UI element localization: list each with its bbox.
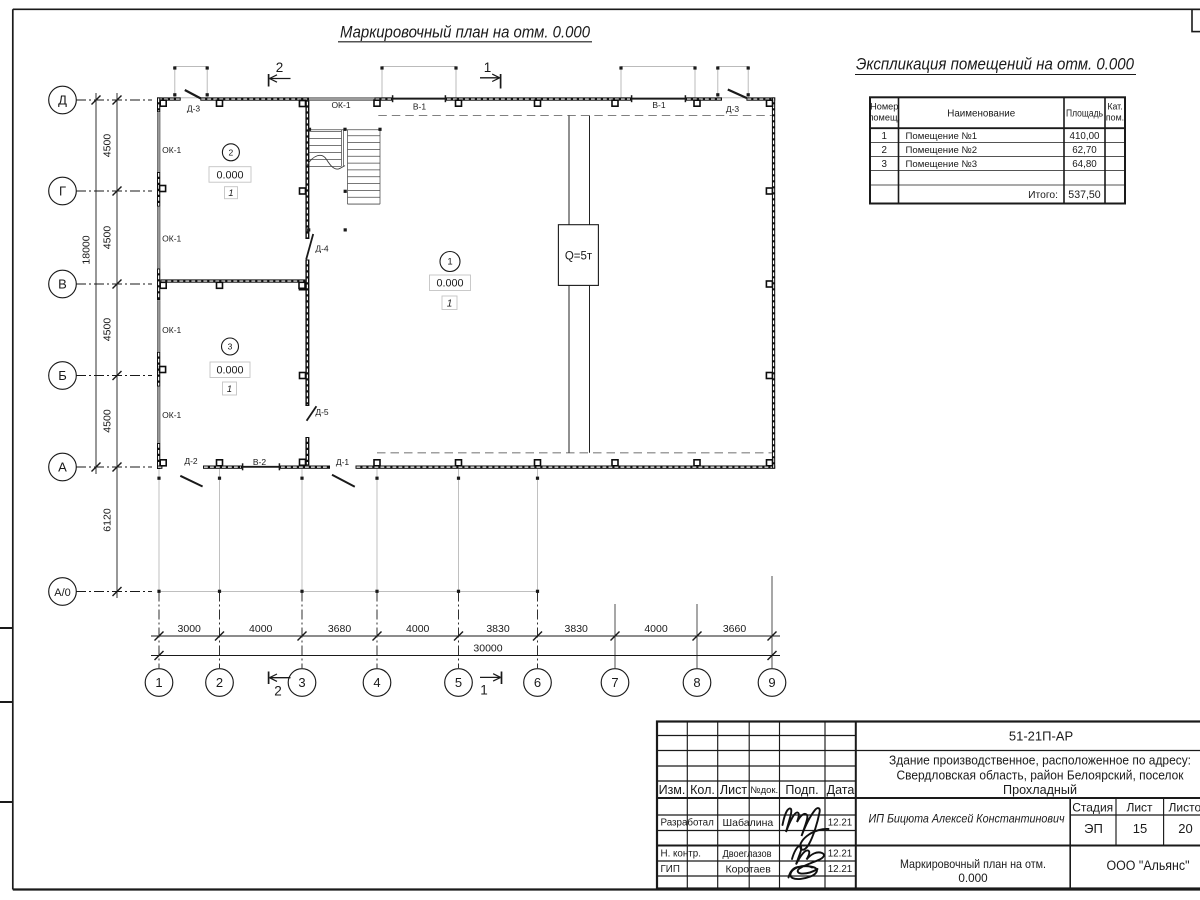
svg-text:64,80: 64,80 <box>1072 159 1097 170</box>
svg-text:Свердловская область, район Бе: Свердловская область, район Белоярский, … <box>897 768 1184 782</box>
svg-text:410,00: 410,00 <box>1070 131 1101 142</box>
svg-text:ОК-1: ОК-1 <box>162 325 181 335</box>
svg-text:Д-3: Д-3 <box>187 104 201 114</box>
svg-text:ОК-1: ОК-1 <box>162 145 181 155</box>
svg-text:Дата: Дата <box>827 783 855 797</box>
svg-text:Д-1: Д-1 <box>336 457 350 467</box>
svg-text:537,50: 537,50 <box>1068 189 1101 201</box>
svg-text:Итого:: Итого: <box>1028 190 1058 201</box>
svg-text:Помещение №1: Помещение №1 <box>906 131 978 142</box>
svg-text:Д: Д <box>58 92 67 107</box>
svg-text:3: 3 <box>298 675 305 690</box>
svg-text:12.21: 12.21 <box>828 864 853 875</box>
svg-text:Г: Г <box>59 183 66 198</box>
svg-text:ИП Бицюта Алексей Константинов: ИП Бицюта Алексей Константинович <box>869 812 1065 826</box>
svg-text:Лист: Лист <box>720 783 747 797</box>
svg-text:0.000: 0.000 <box>436 278 463 290</box>
svg-text:ООО "Альянс": ООО "Альянс" <box>1107 858 1190 873</box>
svg-text:2: 2 <box>229 148 234 158</box>
svg-text:4500: 4500 <box>102 226 114 250</box>
svg-text:Маркировочный план на отм. 0.0: Маркировочный план на отм. 0.000 <box>340 24 591 42</box>
svg-text:8: 8 <box>693 675 700 690</box>
svg-text:3830: 3830 <box>565 623 589 635</box>
svg-text:20: 20 <box>1178 821 1192 836</box>
svg-text:Кол.: Кол. <box>690 783 715 797</box>
svg-text:Б: Б <box>58 368 67 383</box>
svg-text:Коротаев: Коротаев <box>726 864 772 876</box>
svg-text:6120: 6120 <box>102 508 114 532</box>
svg-text:Экспликация помещений на отм.: Экспликация помещений на отм. 0.000 <box>856 56 1135 74</box>
svg-text:4: 4 <box>373 675 380 690</box>
svg-text:1: 1 <box>447 299 453 310</box>
svg-text:Помещение №2: Помещение №2 <box>906 145 978 156</box>
svg-text:ОК-1: ОК-1 <box>162 234 181 244</box>
svg-text:Двоеглазов: Двоеглазов <box>723 848 772 860</box>
svg-text:5: 5 <box>455 675 462 690</box>
svg-text:1: 1 <box>155 675 162 690</box>
svg-text:3000: 3000 <box>178 623 202 635</box>
svg-text:Н. контр.: Н. контр. <box>661 849 701 860</box>
svg-text:Площадь: Площадь <box>1066 109 1103 120</box>
svg-text:7: 7 <box>611 675 618 690</box>
svg-text:0.000: 0.000 <box>216 169 243 181</box>
svg-text:0.000: 0.000 <box>958 872 988 885</box>
svg-text:2: 2 <box>276 60 284 75</box>
svg-text:15: 15 <box>1133 821 1147 836</box>
svg-text:Изм.: Изм. <box>659 783 686 797</box>
svg-text:пом.: пом. <box>1106 113 1124 123</box>
svg-text:4500: 4500 <box>102 318 114 342</box>
svg-text:В: В <box>58 276 67 291</box>
svg-text:Наименование: Наименование <box>947 109 1015 120</box>
svg-text:1: 1 <box>228 188 233 198</box>
svg-text:помещ.: помещ. <box>868 113 900 123</box>
svg-text:9: 9 <box>768 675 775 690</box>
svg-text:1: 1 <box>447 257 452 268</box>
svg-text:А/0: А/0 <box>54 587 71 599</box>
svg-text:№док.: №док. <box>750 785 778 796</box>
svg-text:2: 2 <box>882 145 887 156</box>
svg-text:62,70: 62,70 <box>1072 145 1097 156</box>
svg-text:1: 1 <box>484 60 492 75</box>
svg-text:Q=5т: Q=5т <box>565 251 593 263</box>
svg-text:Номер: Номер <box>870 102 898 112</box>
svg-text:30000: 30000 <box>473 643 502 655</box>
svg-text:3: 3 <box>228 342 233 352</box>
svg-text:Кат.: Кат. <box>1107 102 1122 112</box>
svg-text:12.21: 12.21 <box>828 849 853 860</box>
svg-text:Д-5: Д-5 <box>315 407 329 417</box>
svg-text:3830: 3830 <box>486 623 510 635</box>
svg-text:Д-3: Д-3 <box>726 104 740 114</box>
svg-text:Прохладный: Прохладный <box>1003 783 1077 797</box>
svg-text:12.21: 12.21 <box>828 818 853 829</box>
svg-text:ОК-1: ОК-1 <box>162 410 181 420</box>
svg-text:Д-2: Д-2 <box>184 456 198 466</box>
svg-text:Маркировочный план на отм.: Маркировочный план на отм. <box>900 858 1046 871</box>
svg-text:В-2: В-2 <box>253 457 267 467</box>
svg-text:ОК-1: ОК-1 <box>331 100 350 110</box>
svg-text:3660: 3660 <box>723 623 747 635</box>
svg-text:Шабалина: Шабалина <box>723 817 774 829</box>
svg-text:Д-4: Д-4 <box>315 244 329 254</box>
svg-text:2: 2 <box>216 675 223 690</box>
svg-text:4000: 4000 <box>644 623 668 635</box>
svg-text:3: 3 <box>882 159 888 170</box>
svg-text:0.000: 0.000 <box>216 365 243 377</box>
svg-text:Подп.: Подп. <box>785 783 818 797</box>
svg-text:Листов: Листов <box>1169 801 1200 815</box>
svg-text:В-1: В-1 <box>413 102 427 112</box>
svg-text:2: 2 <box>274 684 282 699</box>
svg-text:Лист: Лист <box>1126 801 1153 815</box>
svg-text:1: 1 <box>882 131 887 142</box>
svg-text:3680: 3680 <box>328 623 352 635</box>
svg-text:18000: 18000 <box>81 235 93 264</box>
svg-text:1: 1 <box>227 384 232 394</box>
svg-text:4000: 4000 <box>249 623 273 635</box>
svg-text:А: А <box>58 459 67 474</box>
svg-text:4500: 4500 <box>102 409 114 433</box>
svg-text:6: 6 <box>534 675 541 690</box>
svg-text:ЭП: ЭП <box>1084 821 1103 836</box>
svg-text:Здание производственное, распо: Здание производственное, расположенное п… <box>889 754 1191 768</box>
svg-text:ГИП: ГИП <box>661 864 680 875</box>
svg-text:4000: 4000 <box>406 623 430 635</box>
svg-text:В-1: В-1 <box>652 100 666 110</box>
svg-text:Стадия: Стадия <box>1072 801 1113 815</box>
svg-text:51-21П-АР: 51-21П-АР <box>1009 729 1073 744</box>
svg-text:4500: 4500 <box>102 134 114 158</box>
svg-text:Помещение №3: Помещение №3 <box>906 159 978 170</box>
svg-text:1: 1 <box>480 683 488 698</box>
svg-text:Разработал: Разработал <box>661 818 715 829</box>
